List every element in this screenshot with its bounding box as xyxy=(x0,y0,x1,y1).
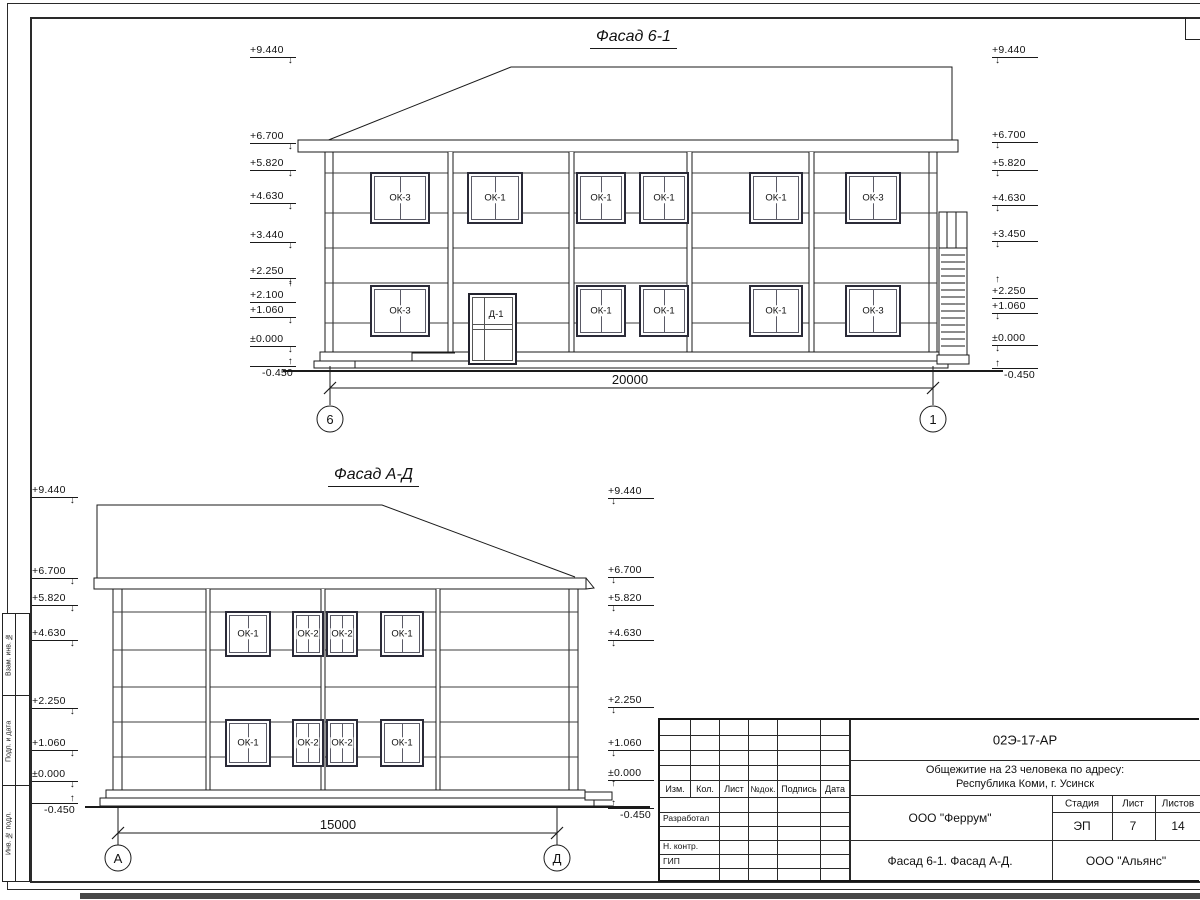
elevation-mark: +6.700↓ xyxy=(32,565,78,579)
tb-row-razrabotal: Разработал xyxy=(663,813,709,823)
window-ok1: ОК-1 xyxy=(749,172,803,224)
elevation-arrow-icon: ↓ xyxy=(995,169,1000,179)
elevation-mark: +4.630↓ xyxy=(992,192,1038,206)
elevation-mark: +9.440↓ xyxy=(32,484,78,498)
window-label: ОК-1 xyxy=(652,305,675,316)
tb-sheet-label: Лист xyxy=(1122,799,1144,810)
elevation-arrow-icon: ↑ xyxy=(288,357,293,367)
tb-vline xyxy=(1052,795,1053,880)
elevation-arrow-icon: ↓ xyxy=(70,604,75,614)
window-label: ОК-2 xyxy=(296,737,319,748)
tb-vline xyxy=(719,720,720,880)
facade-a-d-title: Фасад А-Д xyxy=(328,466,419,487)
axis-6: 6 xyxy=(326,412,333,427)
margin-label: Взам. инв. № xyxy=(3,614,15,696)
elevation-mark: -0.450↑ xyxy=(32,803,78,817)
elevation-arrow-icon: ↓ xyxy=(611,576,616,586)
margin-box-inv: Инв. № подл. xyxy=(2,785,30,882)
elevation-arrow-icon: ↓ xyxy=(288,316,293,326)
window-label: ОК-1 xyxy=(589,305,612,316)
elevation-mark: +2.250↓ xyxy=(250,265,296,279)
tb-hline xyxy=(849,760,1200,761)
window-label: ОК-3 xyxy=(861,192,884,203)
tb-col-izm: Изм. xyxy=(665,784,684,794)
elevation-mark: -0.450↑ xyxy=(992,368,1038,382)
elevation-arrow-icon: ↓ xyxy=(995,204,1000,214)
door-rail xyxy=(473,324,512,325)
tb-hline xyxy=(660,797,849,798)
elevation-arrow-icon: ↓ xyxy=(995,240,1000,250)
window-label: ОК-1 xyxy=(390,628,413,639)
margin-divider xyxy=(15,614,16,696)
elevation-arrow-icon: ↑ xyxy=(611,799,616,809)
elevation-mark: +6.700↓ xyxy=(608,564,654,578)
drawing-sheet: 20000 6 1 xyxy=(0,0,1200,900)
margin-divider xyxy=(15,786,16,881)
entrance-door: Д-1 xyxy=(468,293,517,365)
tb-doc-code: 02Э-17-АР xyxy=(993,733,1057,748)
window-label: ОК-2 xyxy=(296,628,319,639)
tb-sheets-value: 14 xyxy=(1171,819,1184,833)
margin-label: Подп. и дата xyxy=(3,696,15,786)
tb-stage-label: Стадия xyxy=(1065,799,1099,810)
tb-drawing-title: Фасад 6-1. Фасад А-Д. xyxy=(887,854,1012,868)
window-label: ОК-1 xyxy=(483,192,506,203)
window-ok3: ОК-3 xyxy=(845,285,901,337)
tb-hline xyxy=(660,780,849,781)
elevation-mark: +4.630↓ xyxy=(608,627,654,641)
elevation-mark: +2.100↑ xyxy=(250,289,296,303)
elevation-mark: +4.630↓ xyxy=(250,190,296,204)
margin-divider xyxy=(15,696,16,786)
tb-hline xyxy=(849,840,1200,841)
elevation-arrow-icon: ↓ xyxy=(70,749,75,759)
window-ok1: ОК-1 xyxy=(380,719,424,767)
window-ok3: ОК-3 xyxy=(845,172,901,224)
elevation-arrow-icon: ↓ xyxy=(611,706,616,716)
elevation-arrow-icon: ↓ xyxy=(70,496,75,506)
tb-stage-value: ЭП xyxy=(1073,819,1090,833)
dim-value-15000: 15000 xyxy=(320,817,356,832)
elevation-mark: +4.630↓ xyxy=(32,627,78,641)
tb-vline xyxy=(777,720,778,880)
elevation-mark: ±0.000↓ xyxy=(250,333,296,347)
elevation-arrow-icon: ↓ xyxy=(995,56,1000,66)
window-label: ОК-1 xyxy=(652,192,675,203)
elevation-mark: -0.450↑ xyxy=(250,366,296,380)
tb-sheet-value: 7 xyxy=(1130,819,1137,833)
elevation-arrow-icon: ↑ xyxy=(995,359,1000,369)
elevation-arrow-icon: ↓ xyxy=(70,780,75,790)
elevation-arrow-icon: ↓ xyxy=(611,497,616,507)
door-rail xyxy=(473,329,512,330)
elevation-arrow-icon: ↓ xyxy=(995,312,1000,322)
elevation-mark: ±0.000↑ xyxy=(608,767,654,781)
elevation-mark: +5.820↓ xyxy=(608,592,654,606)
tb-hline xyxy=(660,868,849,869)
tb-vline xyxy=(690,720,691,797)
window-ok3: ОК-3 xyxy=(370,285,430,337)
elevation-arrow-icon: ↓ xyxy=(611,639,616,649)
elevation-arrow-icon: ↓ xyxy=(288,142,293,152)
window-label: ОК-1 xyxy=(764,192,787,203)
elevation-mark: +5.820↓ xyxy=(32,592,78,606)
elevation-arrow-icon: ↑ xyxy=(611,779,616,789)
tb-vline xyxy=(748,720,749,880)
tb-hline xyxy=(660,826,849,827)
tb-col-data: Дата xyxy=(825,784,845,794)
axis-a: А xyxy=(114,851,123,866)
elevation-arrow-icon: ↓ xyxy=(995,141,1000,151)
window-ok1: ОК-1 xyxy=(467,172,523,224)
window-ok1: ОК-1 xyxy=(576,285,626,337)
margin-box-vzam: Взам. инв. № xyxy=(2,613,30,697)
window-label: ОК-2 xyxy=(330,737,353,748)
margin-box-podp: Подп. и дата xyxy=(2,695,30,787)
tb-sheets-label: Листов xyxy=(1162,799,1195,810)
facade-a-d-linework xyxy=(85,505,650,871)
window-ok1: ОК-1 xyxy=(639,172,689,224)
elevation-arrow-icon: ↑ xyxy=(70,794,75,804)
elevation-mark: +2.250↓ xyxy=(32,695,78,709)
elevation-mark: ±0.000↓ xyxy=(32,768,78,782)
tb-col-kol: Кол. xyxy=(696,784,714,794)
elevation-arrow-icon: ↓ xyxy=(288,169,293,179)
elevation-arrow-icon: ↓ xyxy=(70,639,75,649)
tb-hline xyxy=(849,795,1200,796)
elevation-arrow-icon: ↓ xyxy=(288,56,293,66)
axis-1: 1 xyxy=(929,412,936,427)
dim-value-20000: 20000 xyxy=(612,372,648,387)
window-ok1: ОК-1 xyxy=(225,611,271,657)
elevation-arrow-icon: ↓ xyxy=(611,604,616,614)
axis-d: Д xyxy=(553,851,562,866)
tb-col-ndok: №док. xyxy=(751,784,776,794)
tb-vline xyxy=(1112,795,1113,840)
elevation-arrow-icon: ↓ xyxy=(70,707,75,717)
elevation-arrow-icon: ↓ xyxy=(288,345,293,355)
tb-contractor-org: ООО "Альянс" xyxy=(1086,854,1166,868)
window-label: ОК-1 xyxy=(236,737,259,748)
window-label: ОК-1 xyxy=(390,737,413,748)
window-label: ОК-3 xyxy=(388,192,411,203)
window-ok1: ОК-1 xyxy=(639,285,689,337)
window-ok3: ОК-3 xyxy=(370,172,430,224)
margin-label: Инв. № подл. xyxy=(3,786,15,881)
elevation-arrow-icon: ↑ xyxy=(288,279,293,289)
window-label: ОК-3 xyxy=(861,305,884,316)
tb-vline xyxy=(820,720,821,880)
elevation-mark: +2.250↓ xyxy=(608,694,654,708)
elevation-arrow-icon: ↑ xyxy=(995,275,1000,285)
window-label: ОК-1 xyxy=(236,628,259,639)
window-label: ОК-2 xyxy=(330,628,353,639)
elevation-mark: +1.060↓ xyxy=(608,737,654,751)
elevation-arrow-icon: ↓ xyxy=(611,749,616,759)
title-block: Изм. Кол. Лист №док. Подпись Дата Разраб… xyxy=(658,718,1199,882)
tb-hline xyxy=(660,854,849,855)
elevation-arrow-icon: ↓ xyxy=(995,344,1000,354)
elevation-mark: +1.060↓ xyxy=(32,737,78,751)
elevation-mark: ±0.000↓ xyxy=(992,332,1038,346)
tb-hline xyxy=(660,735,849,736)
elevation-mark: +5.820↓ xyxy=(250,157,296,171)
window-label: ОК-3 xyxy=(388,305,411,316)
tb-hline xyxy=(1052,812,1200,813)
window-label: ОК-1 xyxy=(764,305,787,316)
window-ok1: ОК-1 xyxy=(576,172,626,224)
window-ok2: ОК-2 xyxy=(292,611,324,657)
facade-6-1-title: Фасад 6-1 xyxy=(590,28,677,49)
elevation-arrow-icon: ↓ xyxy=(70,577,75,587)
elevation-mark: +9.440↓ xyxy=(608,485,654,499)
fire-escape xyxy=(937,212,969,364)
tb-vline-main xyxy=(849,720,851,880)
elevation-mark: +3.450↓ xyxy=(992,228,1038,242)
tb-hline xyxy=(660,765,849,766)
elevation-mark: +1.060↓ xyxy=(250,304,296,318)
tb-project-line1: Общежитие на 23 человека по адресу: xyxy=(926,764,1124,776)
elevation-mark: +9.440↓ xyxy=(250,44,296,58)
tb-designer-org: ООО "Феррум" xyxy=(909,811,992,825)
window-ok1: ОК-1 xyxy=(225,719,271,767)
elevation-mark: +2.250↑ xyxy=(992,285,1038,299)
tb-vline xyxy=(1155,795,1156,840)
elevation-mark: +9.440↓ xyxy=(992,44,1038,58)
elevation-mark: +6.700↓ xyxy=(992,129,1038,143)
window-ok1: ОК-1 xyxy=(380,611,424,657)
tb-row-nkontr: Н. контр. xyxy=(663,841,698,851)
window-ok2: ОК-2 xyxy=(326,719,358,767)
tb-col-list: Лист xyxy=(724,784,744,794)
door-label: Д-1 xyxy=(488,309,505,320)
tb-project-line2: Республика Коми, г. Усинск xyxy=(956,778,1094,790)
elevation-mark: -0.450↑ xyxy=(608,808,654,822)
elevation-mark: +3.440↓ xyxy=(250,229,296,243)
window-ok2: ОК-2 xyxy=(292,719,324,767)
window-ok2: ОК-2 xyxy=(326,611,358,657)
tb-row-gip: ГИП xyxy=(663,856,680,866)
elevation-arrow-icon: ↓ xyxy=(288,241,293,251)
tb-col-podpis: Подпись xyxy=(781,784,817,794)
window-ok1: ОК-1 xyxy=(749,285,803,337)
elevation-arrow-icon: ↓ xyxy=(288,202,293,212)
elevation-mark: +5.820↓ xyxy=(992,157,1038,171)
tb-hline xyxy=(660,750,849,751)
elevation-mark: +6.700↓ xyxy=(250,130,296,144)
elevation-mark: +1.060↓ xyxy=(992,300,1038,314)
window-label: ОК-1 xyxy=(589,192,612,203)
